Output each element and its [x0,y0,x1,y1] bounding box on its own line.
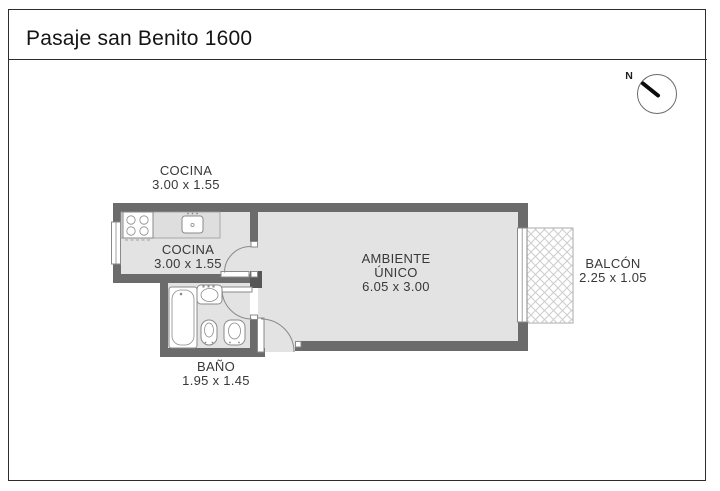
wall-top [113,203,528,212]
kitchen-door-jamb-bottom [251,272,258,278]
wall-kitchen-divider [250,212,258,242]
label-cocina-inside: COCINA 3.00 x 1.55 [118,243,258,271]
room-name: COCINA [118,243,258,257]
bathroom-door-leaf [221,287,252,292]
room-dims: 6.05 x 3.00 [326,280,466,294]
label-cocina-outside: COCINA 3.00 x 1.55 [116,164,256,192]
room-name: ÚNICO [326,266,466,280]
bathtub [169,287,197,348]
kitchen-faucet-dot [187,213,189,215]
floorplan-page: Pasaje san Benito 1600 [0,0,720,491]
label-bano: BAÑO 1.95 x 1.45 [146,360,286,388]
kitchen-fixtures [121,212,220,240]
bidet [201,320,217,345]
label-ambiente-unico: AMBIENTE ÚNICO 6.05 x 3.00 [326,252,466,294]
toilet [224,320,245,345]
wall-main-bottom [295,341,528,351]
wall-bath-bottom [160,348,265,357]
room-name: COCINA [116,164,256,178]
wall-right-top [518,203,528,228]
bidet-dot [205,342,207,344]
bathtub-drain [180,293,183,296]
bidet-dot [212,342,214,344]
wall-right-bottom [518,322,528,351]
kitchen-sink [182,216,203,233]
room-dims: 3.00 x 1.55 [116,178,256,192]
entrance-door-jamb [296,342,302,348]
room-dims: 2.25 x 1.05 [543,271,683,285]
sink-faucet-dot [208,286,210,288]
room-name: BALCÓN [543,257,683,271]
sink-faucet-dot [213,286,215,288]
entrance-door-leaf [258,318,265,352]
wall-bath-right [250,318,258,357]
kitchen-faucet-dot [192,213,194,215]
compass-north-label: N [622,70,636,82]
compass [638,75,677,114]
kitchen-door-leaf [221,272,249,278]
stove [123,212,153,238]
room-dims: 1.95 x 1.45 [146,374,286,388]
sink-faucet-dot [203,286,205,288]
room-dims: 3.00 x 1.55 [118,257,258,271]
toilet-dot [238,342,240,344]
room-name: AMBIENTE [326,252,466,266]
floorplan-drawing [0,0,720,491]
room-name: BAÑO [146,360,286,374]
label-balcon: BALCÓN 2.25 x 1.05 [543,257,683,285]
wall-bath-left [160,283,168,357]
kitchen-faucet-dot [196,213,198,215]
toilet-dot [229,342,231,344]
